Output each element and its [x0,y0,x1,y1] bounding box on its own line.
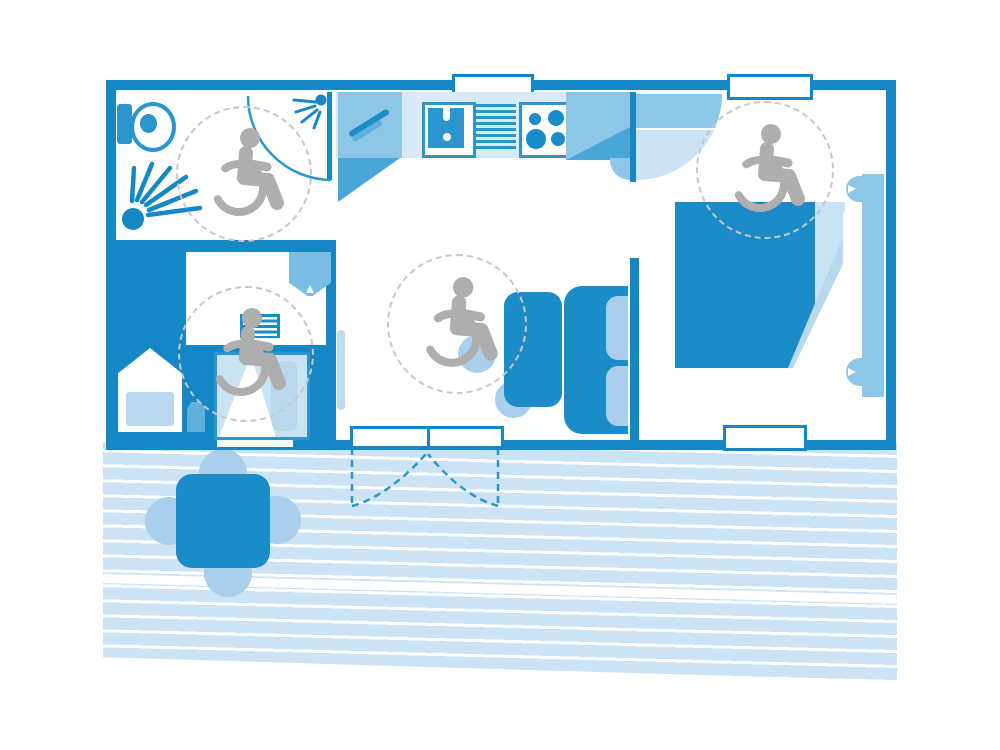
tab-notch-bottom [848,368,856,376]
bathroom-south-wall [116,240,336,252]
floor-plan-stage [0,0,1000,750]
tab-notch-top [848,185,856,193]
stove-icon [519,102,573,158]
armchair-cushion [126,392,174,426]
burner-large-bl [526,129,546,149]
kitchen-sink [422,102,476,158]
entry-door-leaf-right [427,426,504,449]
kitchen-left-cabinet [338,92,402,158]
bedroom-west-wall [630,258,639,440]
wheelchair-accessible-icon [715,120,815,220]
wheelchair-accessible-icon [194,124,294,224]
entry-door-swing-arcs [340,440,510,520]
entry-door-leaf-left [350,426,430,449]
bed-side-tab-top [846,176,884,202]
sofa [564,286,628,434]
shower-spray-icon-small [288,90,330,132]
sofa-cushion-top [606,296,628,360]
bedroom-door-leaf [630,92,636,182]
bedroom-top-window [727,74,813,100]
washbasin-tap [306,285,314,293]
faucet-icon [443,105,450,121]
terrace-table [176,474,270,568]
wheelchair-turning-circle-bathroom [176,106,312,242]
bed-pillow-top [843,210,862,282]
wheelchair-turning-circle-living [387,254,527,394]
wheelchair-accessible-icon [406,273,508,375]
bedroom-bottom-window [723,425,807,451]
kitchen-drainer [476,104,516,151]
cabinet-item-icon [348,108,390,137]
wheelchair-turning-circle-bedroom [696,101,834,239]
small-bedroom-sliding-door [337,330,345,410]
burner-medium-tr [548,110,564,126]
wheelchair-accessible-icon [196,304,296,404]
sofa-cushion-bottom [606,366,628,426]
wheelchair-turning-circle-small-bedroom [178,286,314,422]
burner-small-br [551,132,565,146]
sink-drain [443,133,451,141]
burner-small-tl [529,113,541,125]
bed-side-tab-bottom [846,358,884,386]
toilet-bowl [140,114,157,133]
bed-pillow-bottom [843,288,862,358]
